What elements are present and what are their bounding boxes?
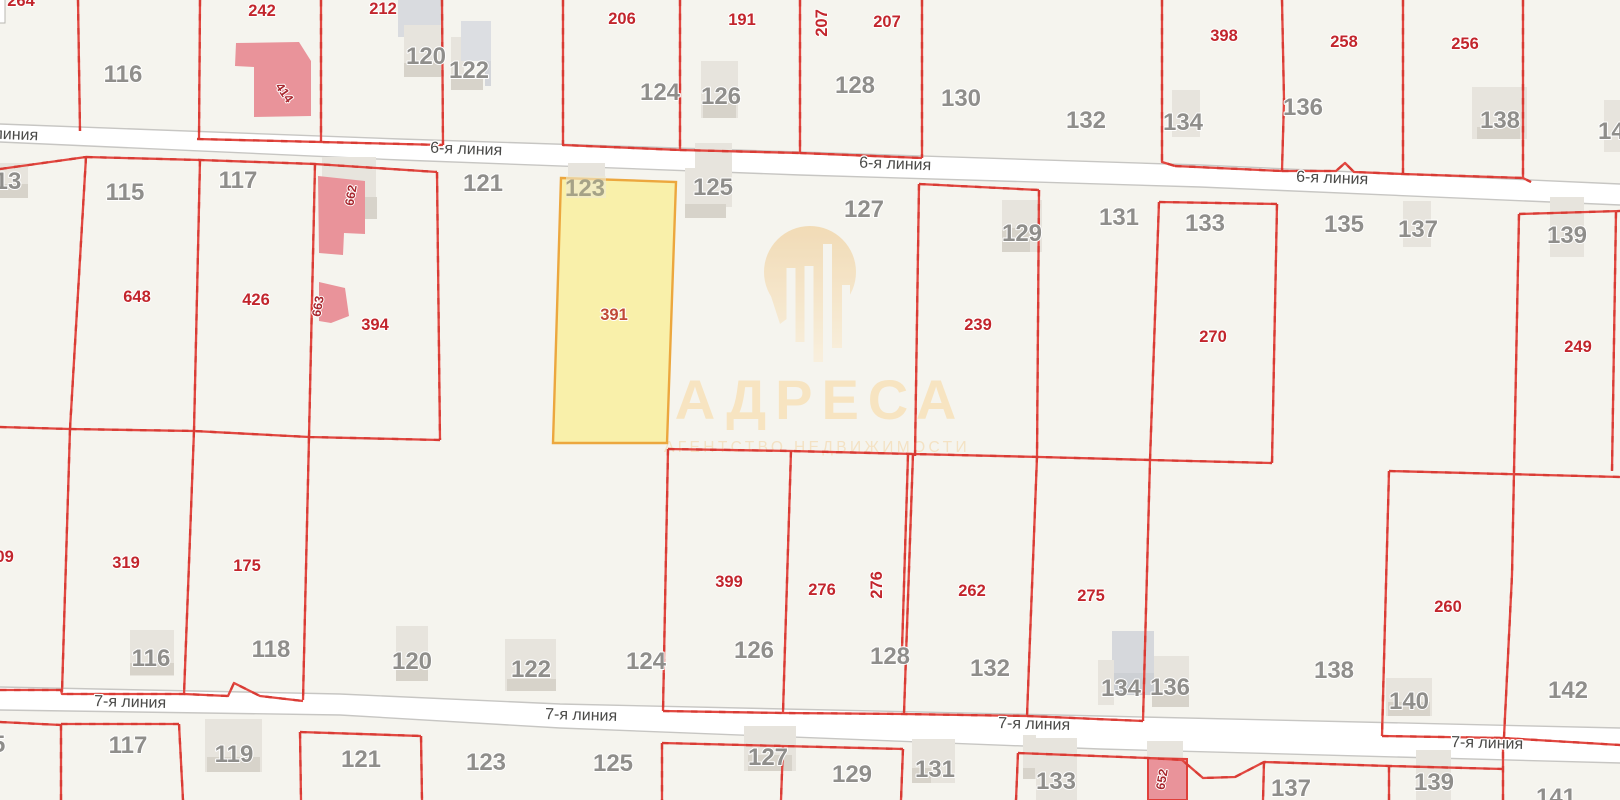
svg-text:239: 239: [964, 316, 992, 334]
svg-text:256: 256: [1451, 35, 1479, 53]
svg-text:129: 129: [832, 761, 872, 788]
svg-text:118: 118: [252, 636, 291, 663]
svg-text:7-я линия: 7-я линия: [1451, 734, 1523, 753]
svg-text:121: 121: [341, 746, 381, 773]
svg-text:399: 399: [715, 573, 743, 591]
svg-text:391: 391: [600, 306, 628, 324]
svg-text:123: 123: [466, 749, 506, 776]
svg-text:115: 115: [106, 179, 145, 206]
svg-text:116: 116: [104, 61, 143, 88]
svg-text:394: 394: [361, 316, 389, 334]
svg-text:130: 130: [941, 85, 981, 112]
svg-text:136: 136: [1150, 674, 1190, 701]
svg-text:126: 126: [734, 637, 774, 664]
svg-text:264: 264: [7, 0, 35, 10]
svg-text:133: 133: [1185, 210, 1225, 237]
svg-text:120: 120: [406, 43, 446, 70]
svg-text:139: 139: [1414, 769, 1454, 796]
svg-text:175: 175: [233, 557, 261, 575]
svg-text:122: 122: [449, 57, 489, 84]
svg-text:6-я линия: 6-я линия: [859, 155, 932, 175]
svg-text:128: 128: [835, 72, 875, 99]
svg-text:206: 206: [608, 10, 636, 28]
svg-text:136: 136: [1283, 94, 1323, 121]
svg-text:138: 138: [1480, 107, 1520, 134]
svg-text:133: 133: [1036, 768, 1076, 795]
svg-text:134: 134: [1101, 675, 1142, 702]
svg-text:129: 129: [1002, 220, 1042, 247]
svg-text:270: 270: [1199, 328, 1227, 346]
svg-text:116: 116: [132, 645, 171, 672]
svg-text:309: 309: [0, 548, 14, 566]
svg-text:121: 121: [463, 170, 503, 197]
svg-text:7-я линия: 7-я линия: [94, 693, 166, 712]
svg-text:275: 275: [1077, 587, 1105, 605]
svg-text:249: 249: [1564, 338, 1592, 356]
svg-text:212: 212: [369, 0, 397, 18]
svg-text:258: 258: [1330, 33, 1358, 51]
svg-text:131: 131: [1099, 204, 1139, 231]
svg-text:117: 117: [109, 732, 148, 759]
svg-text:117: 117: [219, 167, 258, 194]
svg-text:141: 141: [1536, 784, 1576, 800]
svg-text:6-я линия: 6-я линия: [1296, 169, 1369, 189]
svg-text:127: 127: [844, 196, 884, 223]
svg-text:120: 120: [392, 648, 432, 675]
svg-text:137: 137: [1398, 216, 1438, 243]
svg-text:131: 131: [915, 756, 955, 783]
svg-text:242: 242: [248, 2, 276, 20]
svg-text:140: 140: [1389, 688, 1429, 715]
svg-text:207: 207: [813, 9, 831, 37]
svg-text:138: 138: [1314, 657, 1354, 684]
svg-text:398: 398: [1210, 27, 1238, 45]
svg-text:139: 139: [1547, 222, 1587, 249]
svg-text:142: 142: [1548, 677, 1588, 704]
svg-text:132: 132: [1066, 107, 1106, 134]
svg-text:648: 648: [123, 288, 151, 306]
svg-text:140: 140: [1598, 118, 1620, 145]
svg-text:7-я линия: 7-я линия: [998, 715, 1070, 734]
svg-text:6-я линия: 6-я линия: [0, 125, 38, 145]
svg-text:АДРЕСА: АДРЕСА: [675, 368, 966, 431]
svg-text:191: 191: [728, 11, 756, 29]
svg-text:260: 260: [1434, 598, 1462, 616]
svg-text:127: 127: [748, 744, 788, 771]
svg-text:124: 124: [626, 648, 667, 675]
svg-text:119: 119: [215, 741, 254, 768]
svg-text:276: 276: [868, 571, 886, 599]
svg-text:126: 126: [701, 83, 741, 110]
svg-text:113: 113: [0, 168, 21, 195]
svg-text:262: 262: [958, 582, 986, 600]
svg-text:125: 125: [693, 174, 733, 201]
svg-text:122: 122: [511, 656, 551, 683]
svg-text:207: 207: [873, 13, 901, 31]
svg-text:426: 426: [242, 291, 270, 309]
svg-text:6-я линия: 6-я линия: [430, 140, 503, 160]
svg-text:115: 115: [0, 731, 5, 758]
svg-text:137: 137: [1271, 775, 1311, 800]
svg-text:124: 124: [640, 79, 681, 106]
svg-text:128: 128: [870, 643, 910, 670]
svg-text:319: 319: [112, 554, 140, 572]
svg-text:134: 134: [1163, 109, 1204, 136]
svg-text:125: 125: [593, 750, 633, 777]
svg-text:7-я линия: 7-я линия: [545, 706, 617, 725]
svg-text:135: 135: [1324, 211, 1364, 238]
svg-text:132: 132: [970, 655, 1010, 682]
svg-text:123: 123: [565, 175, 605, 202]
svg-text:276: 276: [808, 581, 836, 599]
